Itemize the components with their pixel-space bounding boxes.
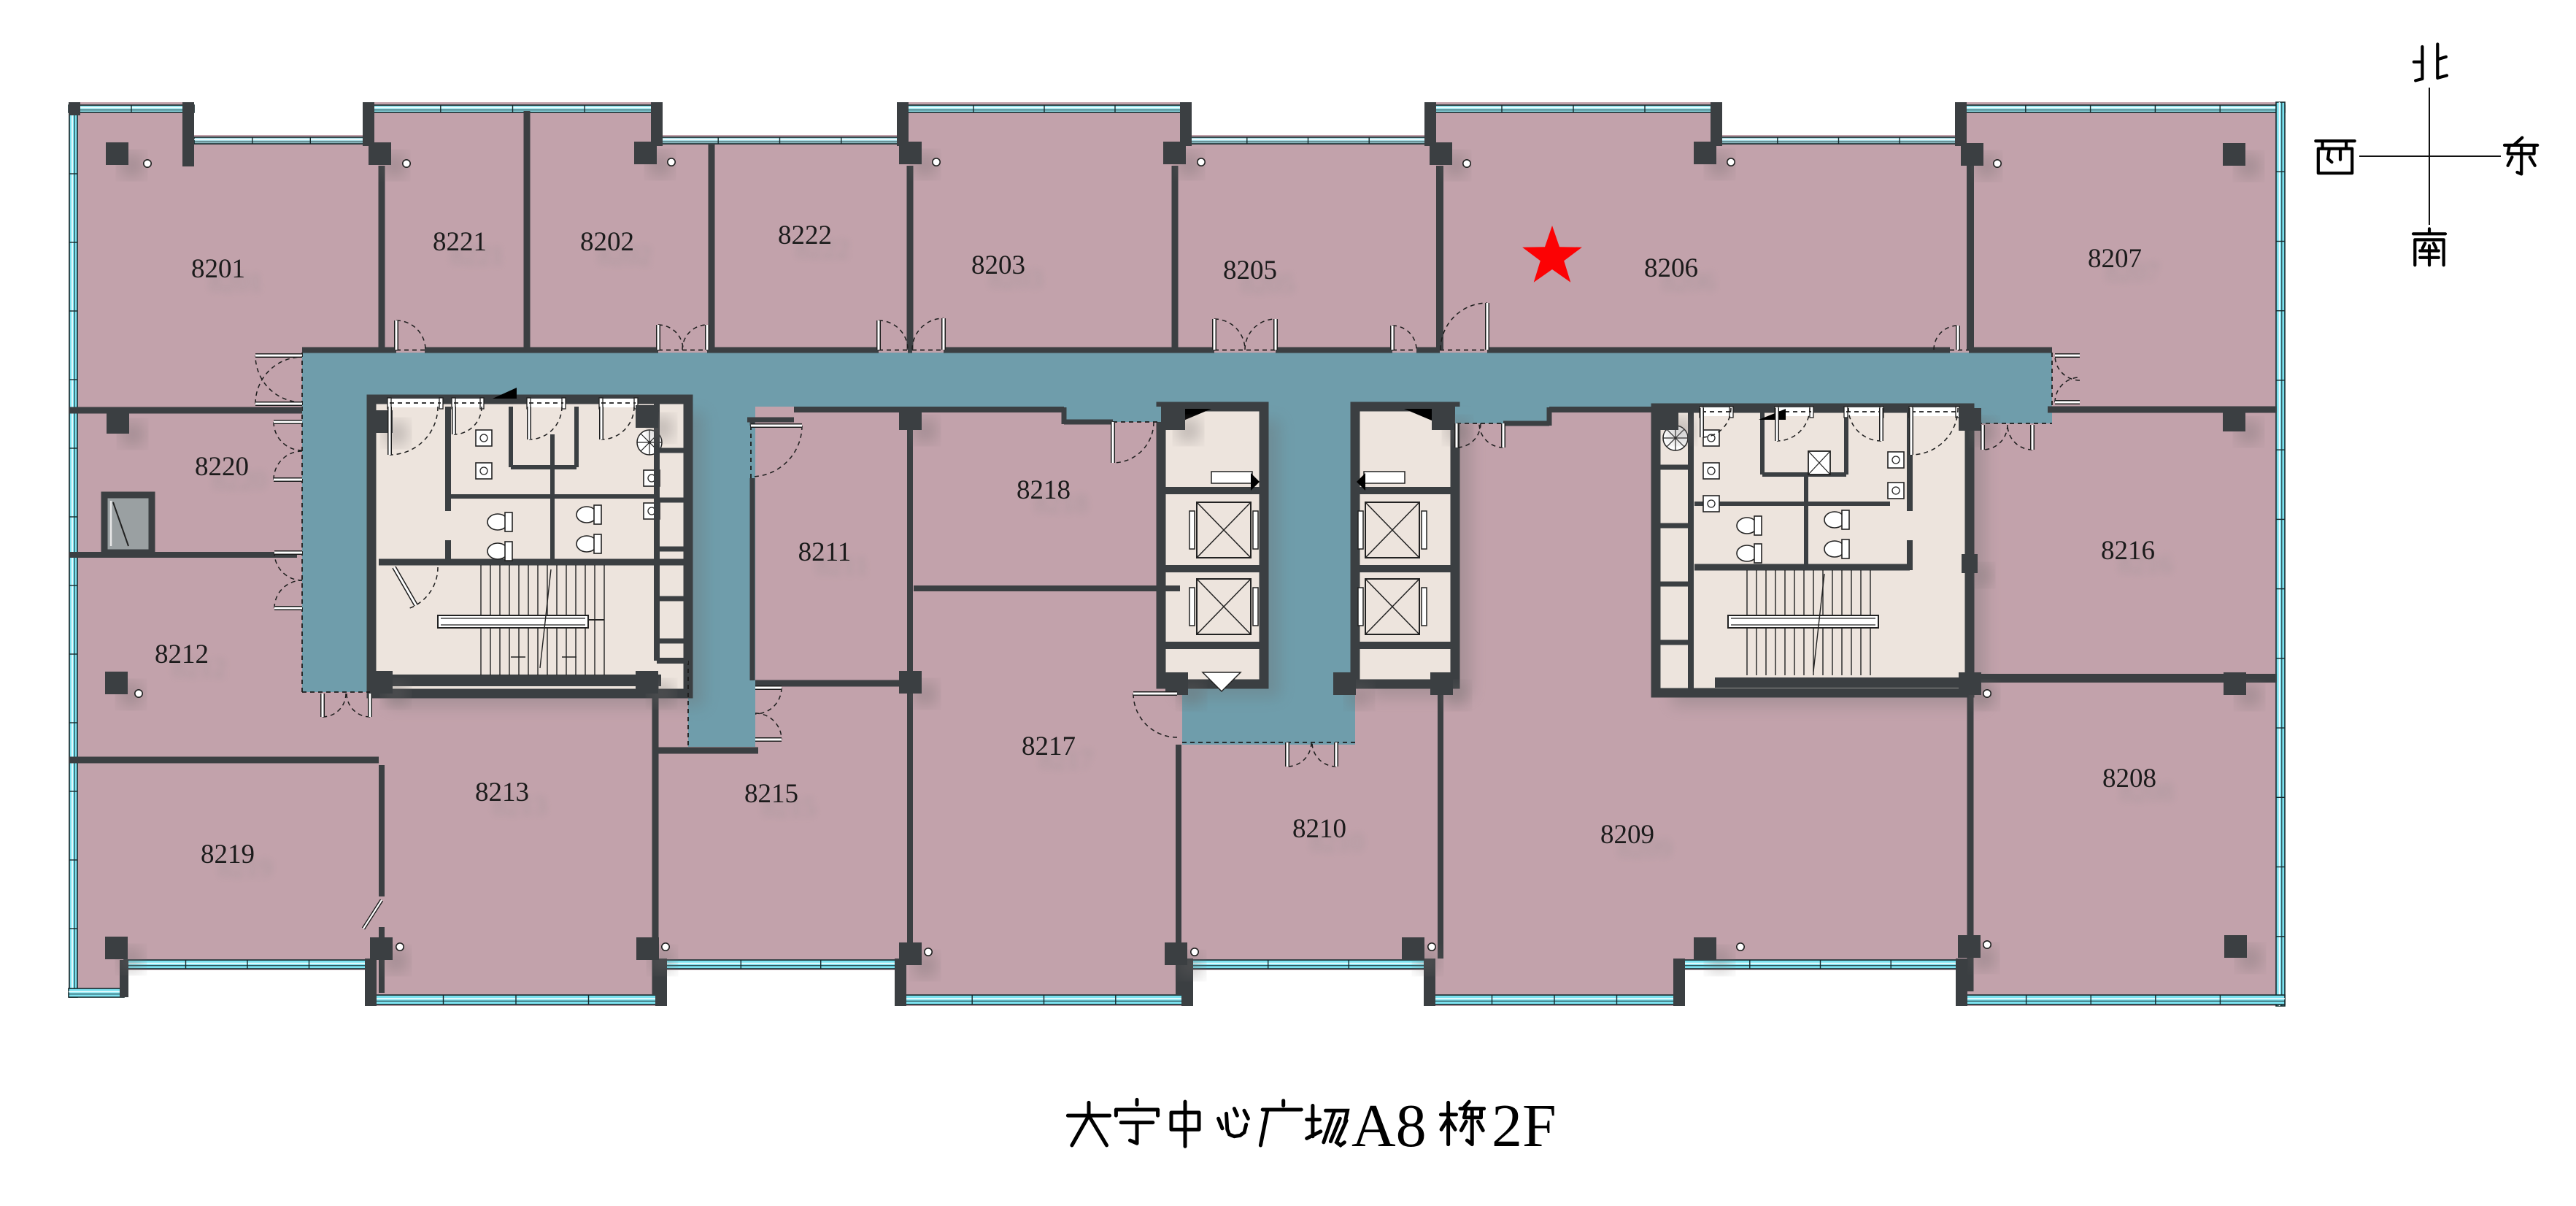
svg-text:A8: A8 bbox=[1351, 1092, 1427, 1160]
svg-text:8205: 8205 bbox=[1223, 256, 1277, 285]
svg-text:8202: 8202 bbox=[580, 227, 634, 257]
svg-text:8221: 8221 bbox=[433, 227, 487, 257]
svg-text:8219: 8219 bbox=[201, 840, 255, 869]
svg-text:8201: 8201 bbox=[191, 254, 245, 284]
svg-text:8208: 8208 bbox=[2102, 764, 2156, 794]
svg-text:8210: 8210 bbox=[1292, 814, 1346, 844]
svg-text:2F: 2F bbox=[1492, 1092, 1557, 1160]
svg-text:8216: 8216 bbox=[2101, 536, 2155, 566]
svg-text:8218: 8218 bbox=[1017, 475, 1071, 505]
svg-text:8203: 8203 bbox=[971, 250, 1025, 280]
svg-text:8209: 8209 bbox=[1600, 820, 1654, 850]
svg-text:8215: 8215 bbox=[744, 779, 798, 809]
svg-text:8222: 8222 bbox=[778, 220, 832, 250]
svg-text:8212: 8212 bbox=[155, 640, 209, 669]
svg-text:8206: 8206 bbox=[1644, 253, 1698, 283]
svg-text:8213: 8213 bbox=[475, 777, 529, 807]
svg-text:8211: 8211 bbox=[798, 537, 852, 567]
svg-text:8220: 8220 bbox=[195, 452, 249, 482]
svg-text:8207: 8207 bbox=[2088, 244, 2142, 274]
svg-text:8217: 8217 bbox=[1022, 731, 1076, 761]
